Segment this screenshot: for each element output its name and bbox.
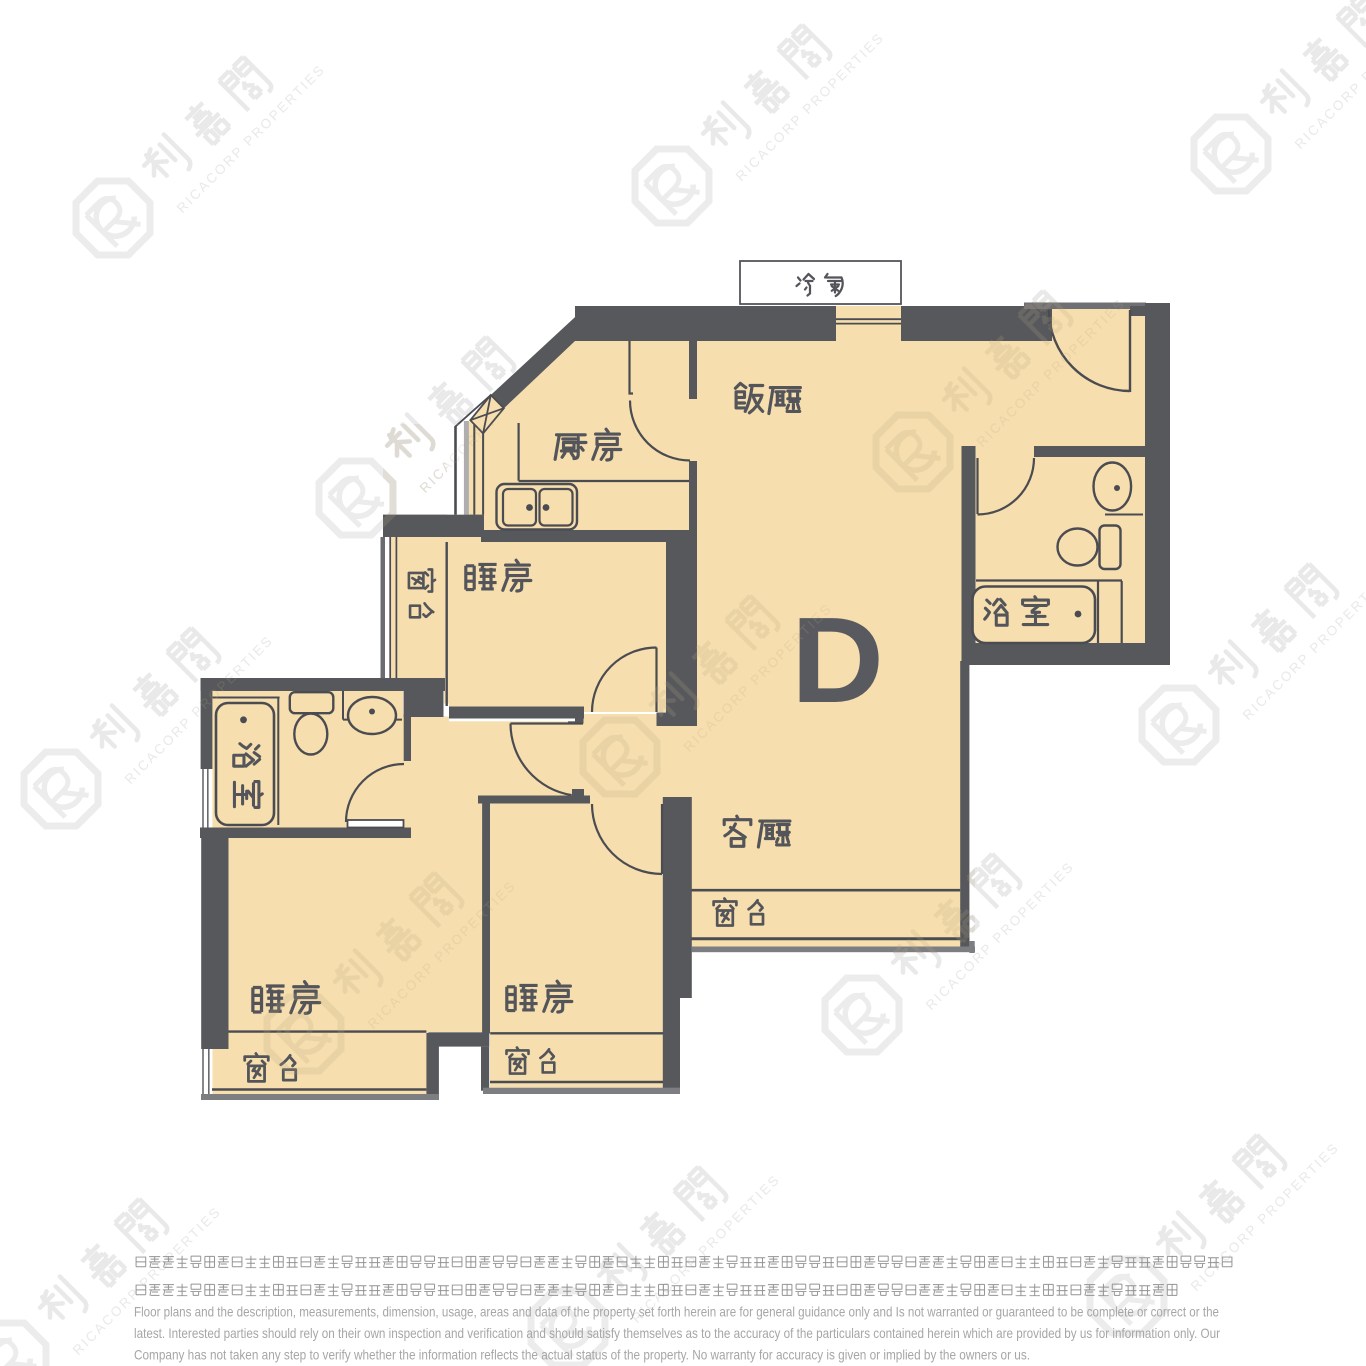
svg-text:Floor plans and the descriptio: Floor plans and the description, measure… (134, 1304, 1219, 1320)
svg-text:Company has not taken any step: Company has not taken any step to verify… (134, 1347, 1030, 1363)
svg-text:latest. Interested parties sho: latest. Interested parties should rely o… (134, 1325, 1220, 1341)
svg-text:D: D (791, 592, 884, 728)
